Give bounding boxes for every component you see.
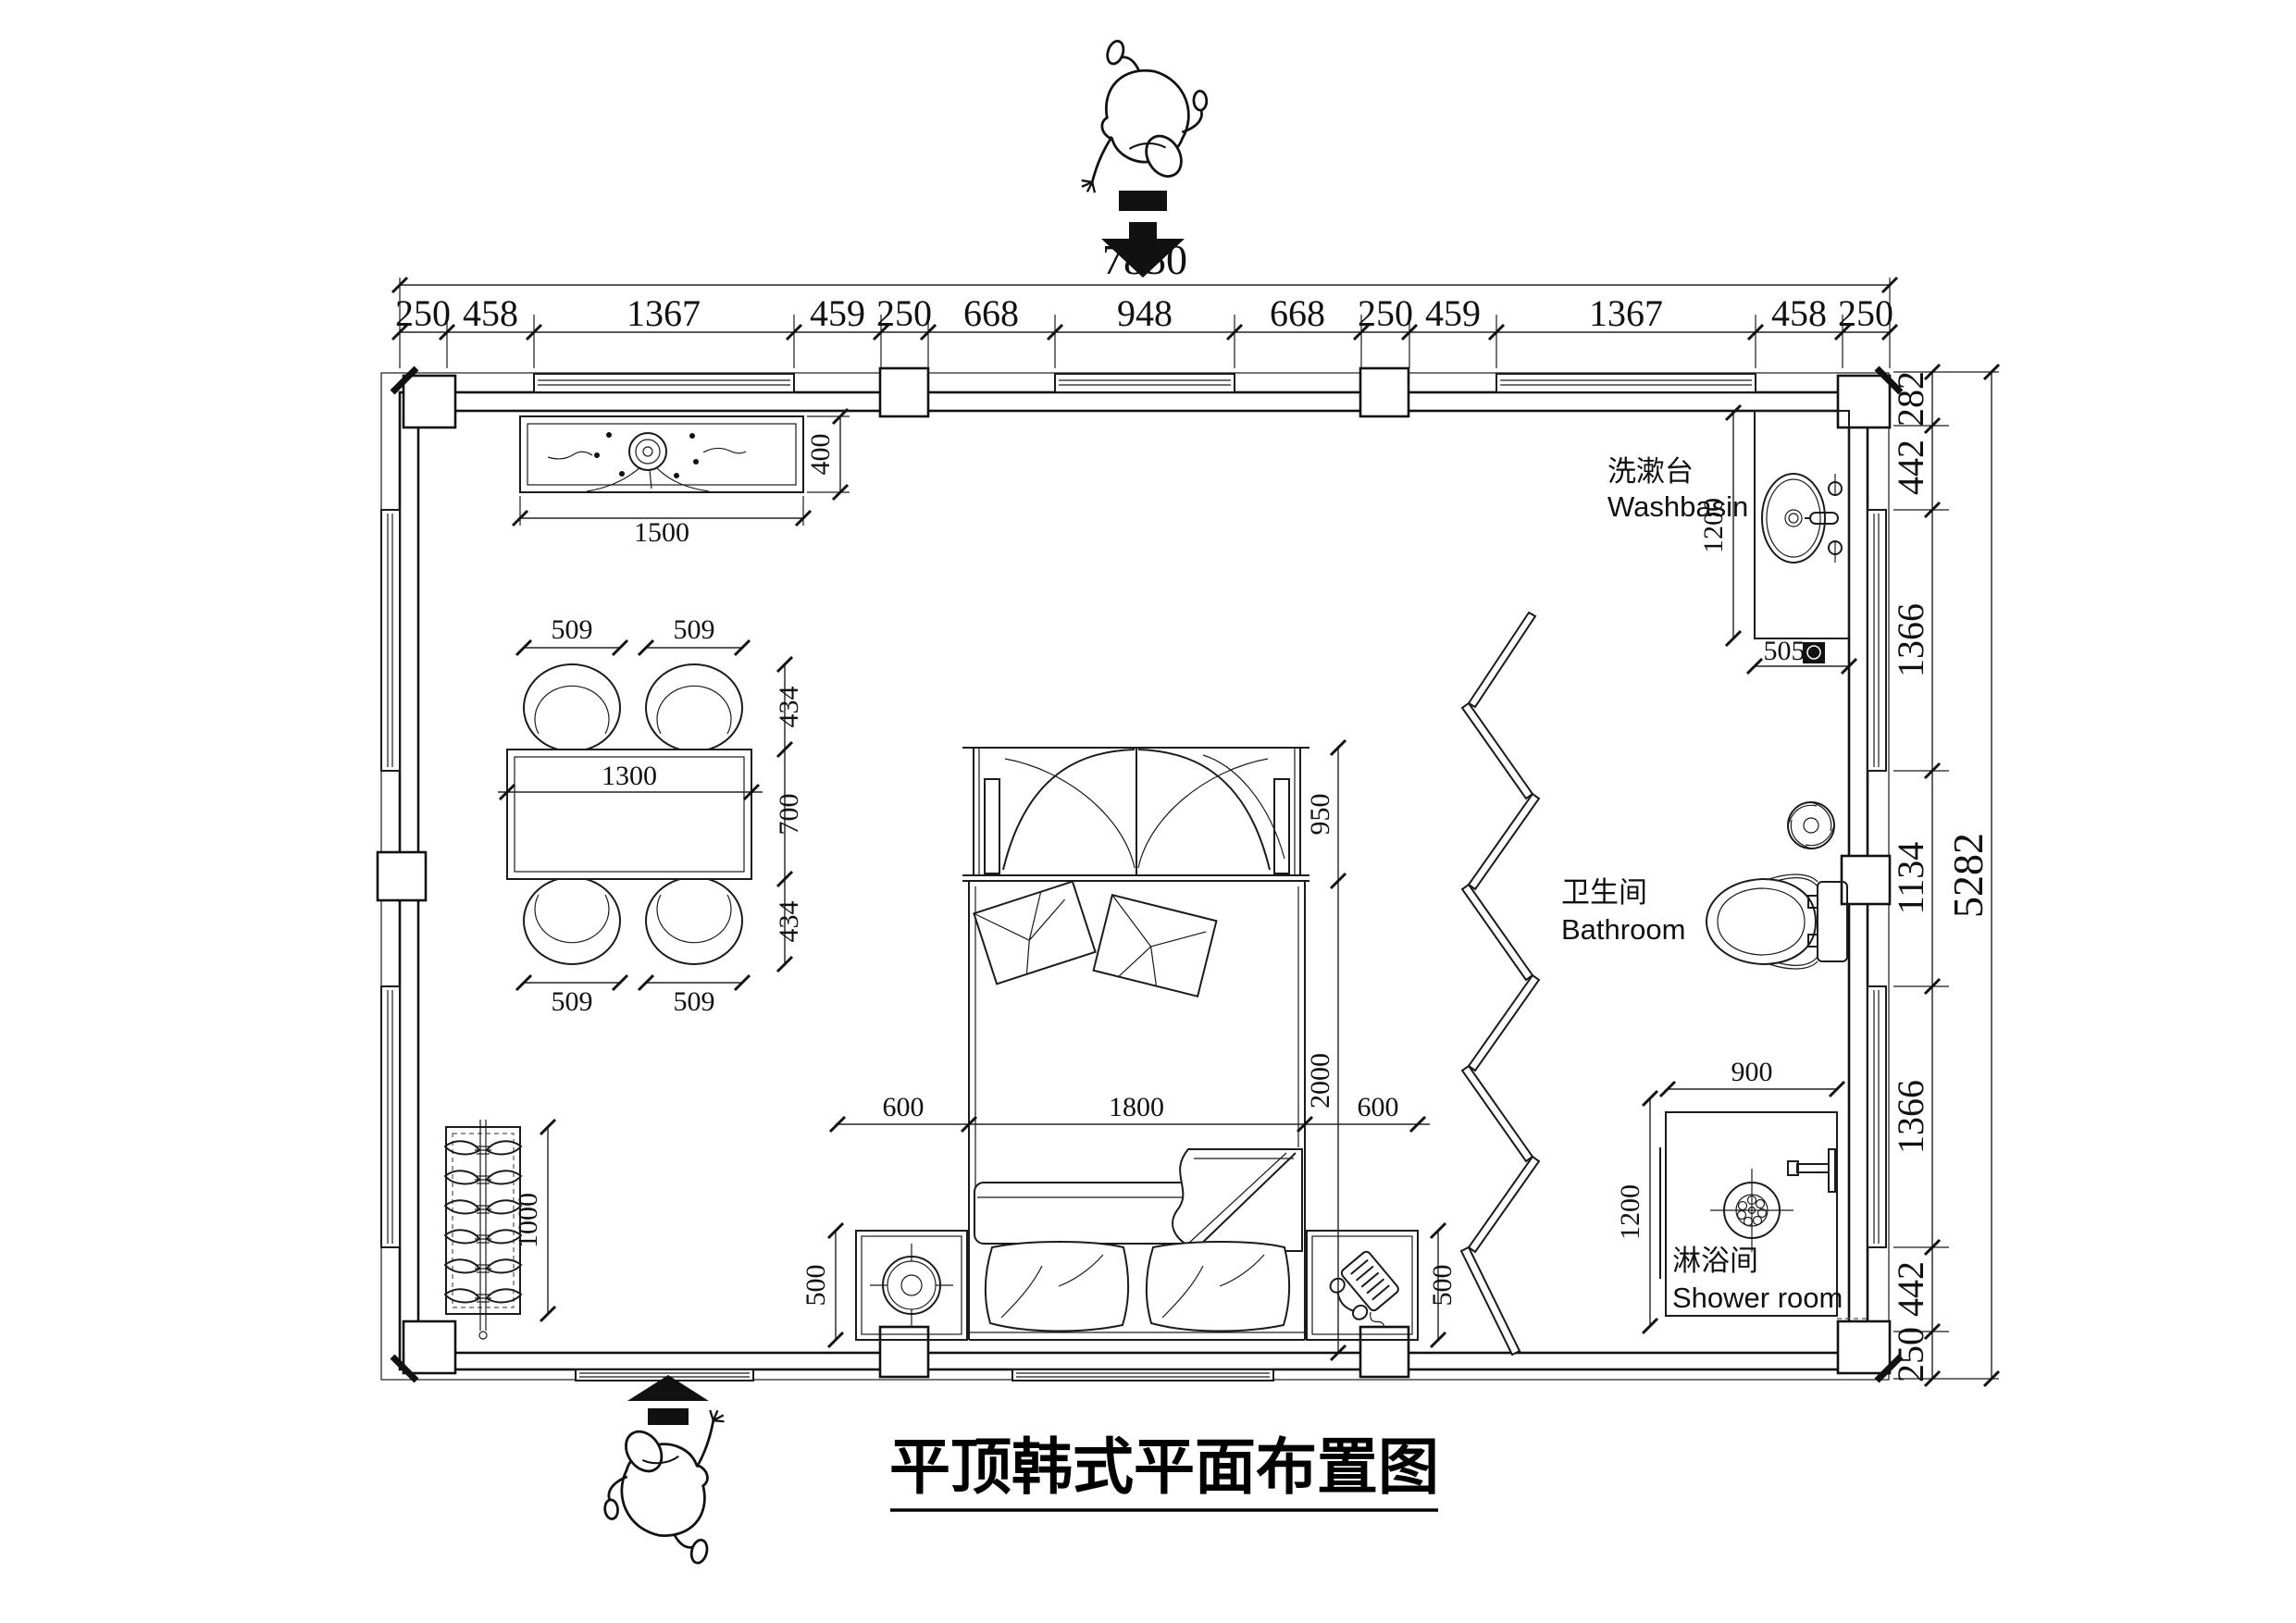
- dim-wardrobe-height: 1000: [513, 1193, 543, 1248]
- door-top-entrance: [1055, 374, 1235, 392]
- page-title: 平顶韩式平面布置图: [889, 1432, 1439, 1501]
- plant-decoration: [548, 432, 746, 491]
- dim-nightstand-width: 600: [883, 1092, 925, 1122]
- dim-chair-w: 509: [674, 614, 715, 645]
- hanging-clothes: [445, 1141, 521, 1302]
- drawing-title: 平顶韩式平面布置图: [889, 1432, 1439, 1510]
- dim-nightstand-width: 600: [1358, 1092, 1399, 1122]
- cabinet-dims: 1500 400: [513, 409, 850, 548]
- dining-chair: [646, 877, 742, 964]
- spiral-drain-icon: [1788, 802, 1834, 849]
- shower-head: [1710, 1169, 1793, 1252]
- entrance-bottom: [596, 1375, 739, 1574]
- window-right-lower: [1868, 986, 1886, 1247]
- dim-bed-width: 1800: [1109, 1092, 1164, 1122]
- dim-chair-w: 509: [674, 986, 715, 1017]
- dim-top-11: 458: [1771, 292, 1827, 334]
- shower-fixture: [1788, 1149, 1835, 1192]
- dining-chair: [524, 664, 620, 751]
- dim-top-1: 458: [463, 292, 518, 334]
- window-bottom: [1012, 1369, 1273, 1381]
- label-washbasin-zh: 洗漱台: [1607, 455, 1694, 488]
- sleeping-pillow: [1147, 1242, 1289, 1332]
- dining-chair: [524, 877, 620, 964]
- shower-room: 900 1200 淋浴间 Shower room: [1615, 1057, 1868, 1333]
- dim-cabinet-depth: 400: [805, 434, 836, 476]
- right-dimension-chain: 282 442 1366 1134 1366 442 250 5282: [1890, 365, 1999, 1386]
- wardrobe-rack: 1000: [445, 1120, 555, 1339]
- dim-chair-w: 509: [552, 986, 593, 1017]
- dim-chair-w: 509: [552, 614, 593, 645]
- dim-right-0: 282: [1890, 371, 1931, 427]
- dim-bed-canopy: 950: [1305, 794, 1335, 836]
- dim-top-0: 250: [395, 292, 451, 334]
- toilet: [1706, 874, 1847, 969]
- telephone: [1326, 1250, 1413, 1339]
- label-shower-zh: 淋浴间: [1672, 1245, 1758, 1277]
- floor-drain: [1803, 642, 1825, 663]
- floor-plan-drawing: 7850 250 458 1367 459 250 668 948 668 25…: [0, 0, 2296, 1623]
- human-figure-top: [1076, 36, 1210, 193]
- dim-right-3: 1134: [1890, 842, 1931, 915]
- dim-cabinet-width: 1500: [634, 517, 689, 548]
- dim-table-width: 1300: [602, 761, 657, 791]
- entrance-bar-top: [1119, 191, 1167, 211]
- decorative-pillow: [1094, 895, 1217, 997]
- label-shower-en: Shower room: [1672, 1282, 1843, 1314]
- sleeping-pillow: [986, 1242, 1128, 1332]
- bed-assembly: 600 1800 600 950 2000: [830, 740, 1430, 1360]
- dim-table-depth: 700: [774, 794, 804, 836]
- dim-top-10: 1367: [1589, 292, 1663, 334]
- bed-dims: 600 1800 600 950 2000: [830, 740, 1430, 1360]
- dim-top-2: 1367: [627, 292, 701, 334]
- dim-nightstand-depth: 500: [800, 1265, 831, 1307]
- dim-right-5: 442: [1890, 1261, 1931, 1317]
- bathroom-area: 卫生间 Bathroom: [1561, 802, 1847, 969]
- dim-shower-depth: 1200: [1615, 1184, 1645, 1240]
- dim-chair-d: 434: [774, 901, 804, 943]
- dim-top-5: 668: [963, 292, 1019, 334]
- dim-right-1: 442: [1890, 440, 1931, 495]
- dim-right-2: 1366: [1890, 603, 1931, 677]
- entrance-top: [1076, 36, 1210, 278]
- basin: [1762, 474, 1825, 563]
- dim-nightstand-depth: 500: [1427, 1265, 1458, 1307]
- dim-right-4: 1366: [1890, 1080, 1931, 1154]
- dining-chair: [646, 664, 742, 751]
- dim-top-7: 668: [1270, 292, 1325, 334]
- window-right-upper: [1868, 510, 1886, 771]
- dim-top-4: 250: [876, 292, 932, 334]
- dim-top-9: 459: [1425, 292, 1481, 334]
- bed-canopy: [962, 748, 1309, 881]
- dim-right-total: 5282: [1944, 833, 1992, 918]
- dim-bed-length: 2000: [1305, 1053, 1335, 1109]
- label-washbasin-en: Washbasin: [1607, 490, 1748, 523]
- table-lamp: [870, 1244, 953, 1327]
- dim-washbasin-width: 505: [1764, 636, 1806, 666]
- window-left-lower: [381, 986, 400, 1247]
- dining-set: 1300 509 509 509 509 434 700 434: [498, 614, 804, 1017]
- bed-bench: [974, 1183, 1206, 1244]
- label-bathroom-en: Bathroom: [1561, 913, 1685, 946]
- folded-blanket: [1173, 1149, 1302, 1251]
- dim-top-3: 459: [810, 292, 865, 334]
- entrance-bar-bottom: [648, 1408, 689, 1425]
- human-figure-bottom: [596, 1409, 739, 1575]
- zigzag-partition: [1461, 613, 1539, 1355]
- console-cabinet: 1500 400: [513, 409, 850, 548]
- dim-top-8: 250: [1358, 292, 1413, 334]
- dim-chair-d: 434: [774, 687, 804, 728]
- dim-top-12: 250: [1838, 292, 1893, 334]
- window-top-right: [1496, 374, 1756, 392]
- window-left-upper: [381, 510, 400, 771]
- dim-right-6: 250: [1890, 1327, 1931, 1382]
- dim-top-6: 948: [1117, 292, 1173, 334]
- label-bathroom-zh: 卫生间: [1561, 876, 1647, 909]
- washbasin-dims: 1200 505: [1698, 405, 1856, 674]
- floor-plan-page: 7850 250 458 1367 459 250 668 948 668 25…: [0, 0, 2296, 1623]
- dim-shower-width: 900: [1731, 1057, 1773, 1087]
- decorative-pillow: [974, 882, 1095, 985]
- washbasin-area: 1200 505 洗漱台 Washbasin: [1607, 405, 1856, 674]
- window-top-left: [534, 374, 794, 392]
